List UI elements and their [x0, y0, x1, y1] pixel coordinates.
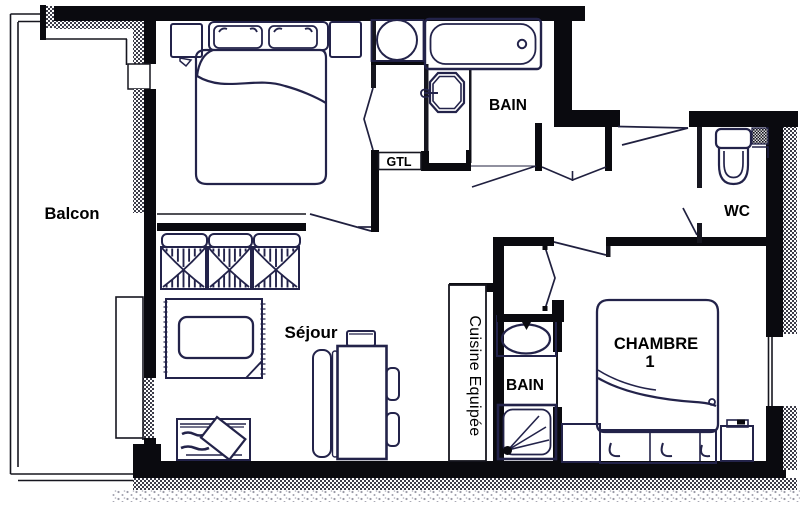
svg-text:BAIN: BAIN	[506, 377, 544, 394]
svg-text:CHAMBRE: CHAMBRE	[614, 335, 698, 353]
svg-text:BAIN: BAIN	[489, 97, 527, 114]
svg-text:GTL: GTL	[387, 155, 412, 169]
svg-text:1: 1	[645, 353, 654, 371]
svg-text:Balcon: Balcon	[44, 205, 99, 223]
svg-text:WC: WC	[724, 203, 750, 220]
svg-text:Cuisine Equipée: Cuisine Equipée	[466, 315, 483, 436]
svg-text:Séjour: Séjour	[285, 323, 338, 342]
